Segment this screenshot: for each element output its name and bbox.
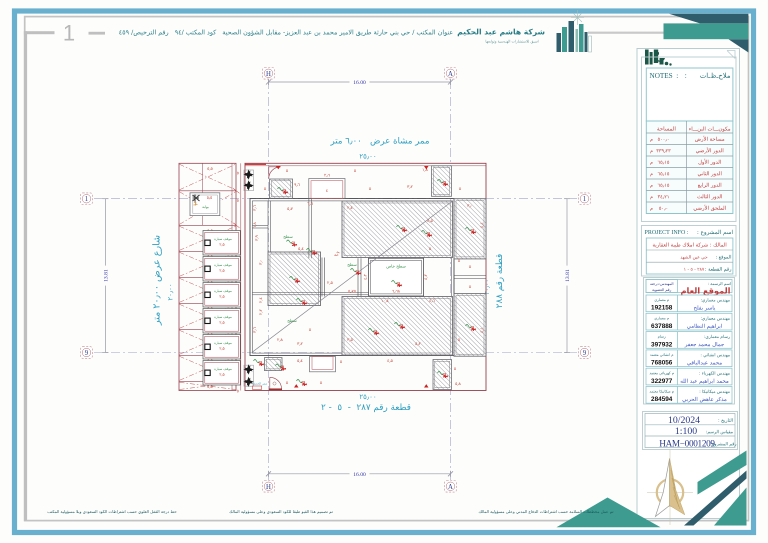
svg-text:284594: 284594	[651, 396, 673, 403]
svg-text:1:100: 1:100	[675, 426, 697, 437]
svg-text:637888: 637888	[651, 323, 673, 330]
svg-text:13.81: 13.81	[565, 269, 571, 282]
svg-text:322977: 322977	[651, 378, 673, 385]
svg-text:NOTES :: NOTES :	[650, 72, 679, 80]
svg-text:192158: 192158	[651, 305, 673, 312]
svg-text:16.00: 16.00	[353, 472, 366, 478]
svg-text:397932: 397932	[651, 341, 673, 348]
svg-text:10/2024: 10/2024	[668, 415, 700, 426]
svg-text:13.81: 13.81	[104, 269, 110, 282]
svg-text:HAM−0001209: HAM−0001209	[659, 438, 715, 448]
svg-text:PROJECT INFO :: PROJECT INFO :	[645, 230, 689, 236]
svg-text:H: H	[266, 484, 271, 491]
svg-text:1: 1	[583, 196, 586, 203]
svg-text:A: A	[448, 484, 453, 491]
svg-text:9: 9	[85, 350, 89, 357]
svg-text:A: A	[448, 71, 453, 78]
svg-text:1: 1	[85, 196, 88, 203]
svg-text:16.00: 16.00	[353, 80, 366, 86]
svg-text:H: H	[266, 71, 271, 78]
svg-text:1: 1	[63, 21, 75, 46]
svg-text:9: 9	[583, 350, 587, 357]
svg-text:768056: 768056	[651, 360, 673, 367]
